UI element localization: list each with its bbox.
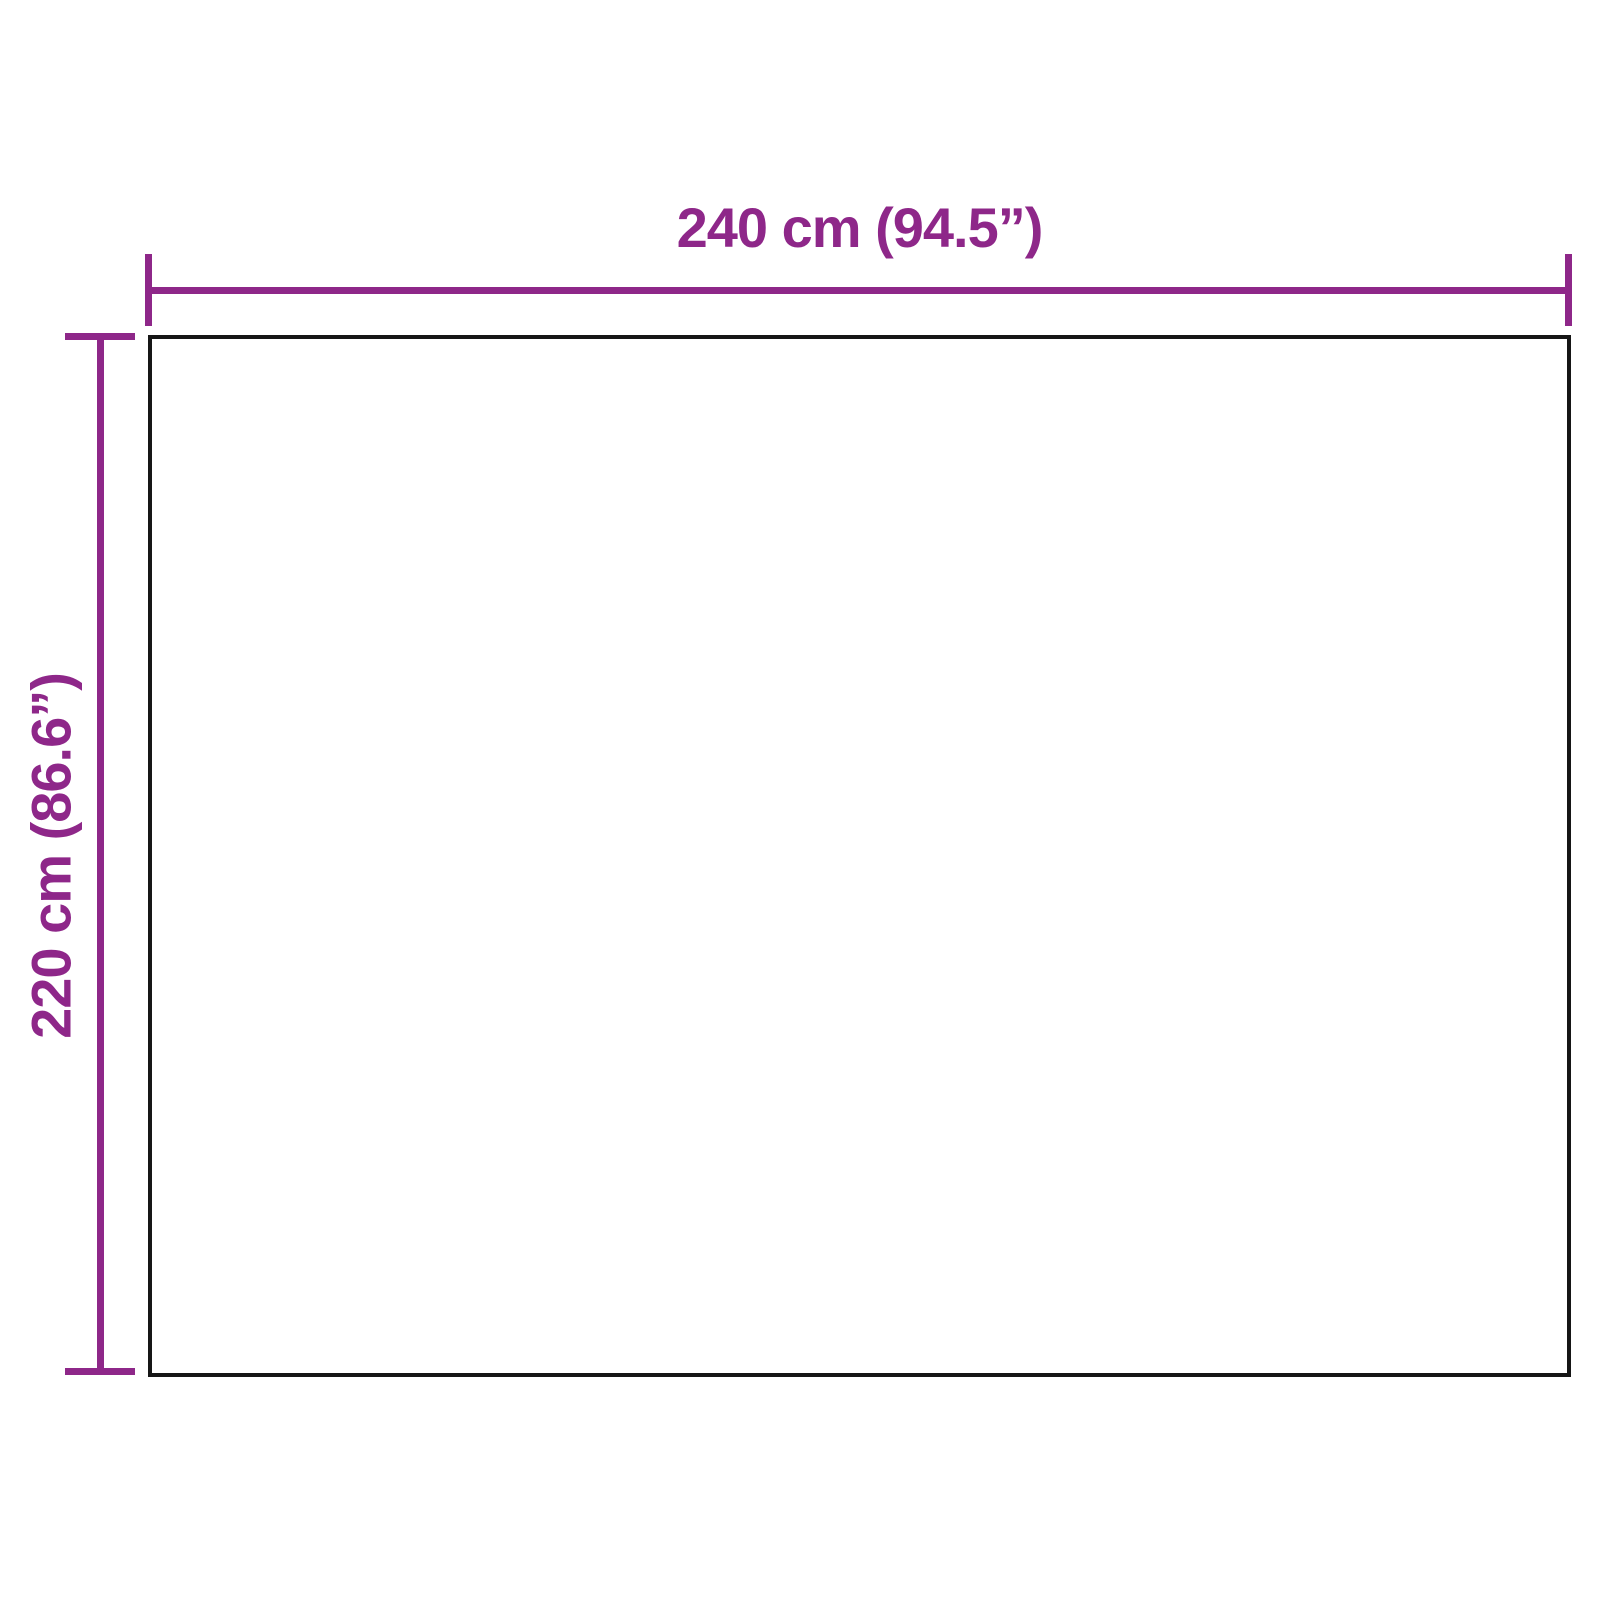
width-dimension-start-tick [145, 254, 152, 326]
dimension-diagram: 240 cm (94.5”) 220 cm (86.6”) [0, 0, 1600, 1600]
width-dimension-end-tick [1565, 254, 1572, 326]
height-dimension-line [97, 333, 104, 1375]
height-dimension-label: 220 cm (86.6”) [17, 336, 87, 1377]
product-outline-rectangle [148, 335, 1571, 1377]
width-dimension-label: 240 cm (94.5”) [148, 193, 1571, 263]
width-dimension-line [145, 287, 1572, 294]
